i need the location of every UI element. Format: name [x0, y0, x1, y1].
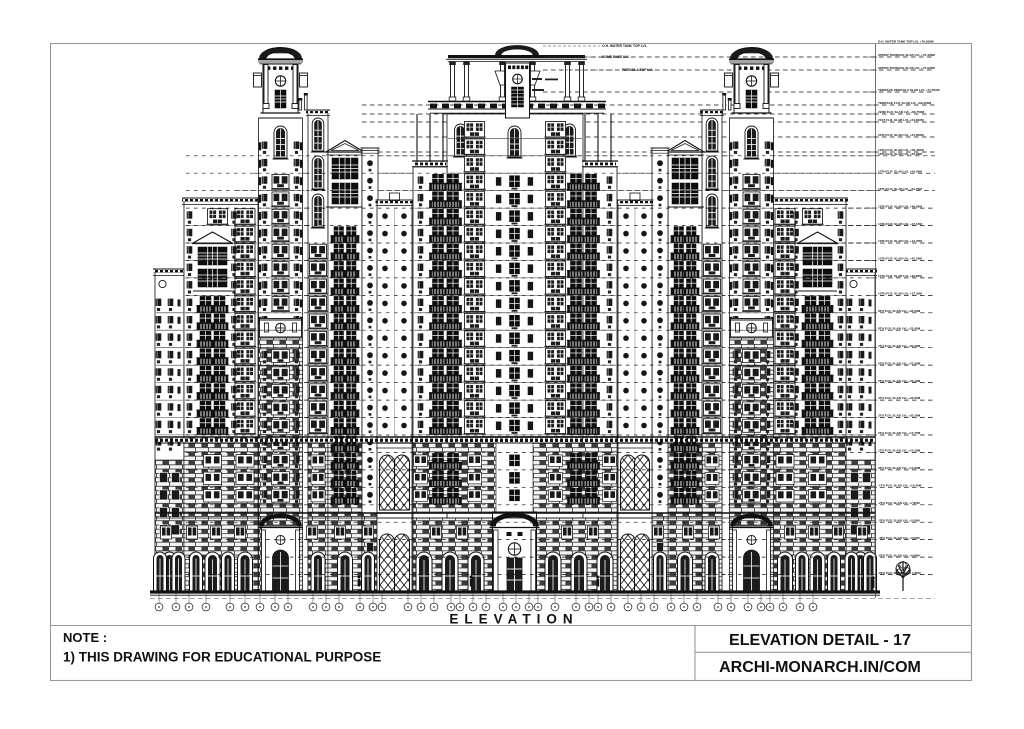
svg-text:2TH FLR. SLAB LVL +17.75M: 2TH FLR. SLAB LVL +17.75M	[878, 431, 921, 435]
svg-text:8TH FLR. SLAB LVL +32.45M: 8TH FLR. SLAB LVL +32.45M	[878, 326, 921, 330]
svg-text:UPPER TERRACE SLAB LVL +76.400: UPPER TERRACE SLAB LVL +76.400M	[878, 53, 935, 57]
svg-text:4TH FLR. SLAB LVL +22.65M: 4TH FLR. SLAB LVL +22.65M	[878, 396, 921, 400]
svg-text:-4TH FLR. SLAB LVL +3.05M: -4TH FLR. SLAB LVL +3.05M	[878, 536, 920, 540]
svg-text:ELEVATION DETAIL - 17: ELEVATION DETAIL - 17	[729, 632, 911, 649]
svg-text:PERGOLA TOP LVL: PERGOLA TOP LVL	[622, 68, 654, 72]
svg-text:6TH FLR. SLAB LVL +27.55M: 6TH FLR. SLAB LVL +27.55M	[878, 361, 921, 365]
svg-text:14TH FLR. SLAB LVL +47.15M: 14TH FLR. SLAB LVL +47.15M	[878, 222, 922, 226]
svg-text:TERRACE PERGOLA SLAB LVL +71.5: TERRACE PERGOLA SLAB LVL +71.500M	[878, 88, 940, 92]
svg-text:ARCHI-MONARCH.IN/COM: ARCHI-MONARCH.IN/COM	[719, 659, 921, 676]
svg-text:O.H. WATER TANK TOP LVL: O.H. WATER TANK TOP LVL	[602, 44, 647, 48]
svg-text:7TH FLR. SLAB LVL +30.00M: 7TH FLR. SLAB LVL +30.00M	[878, 344, 921, 348]
svg-text:11TH FLR. SLAB LVL +39.80M: 11TH FLR. SLAB LVL +39.80M	[878, 274, 922, 278]
svg-text:9TH FLR. SLAB LVL +34.90M: 9TH FLR. SLAB LVL +34.90M	[878, 309, 921, 313]
svg-text:21ST FLR. SLAB LVL +64.300M: 21ST FLR. SLAB LVL +64.300M	[878, 118, 924, 122]
svg-text:12TH FLR. SLAB LVL +42.25M: 12TH FLR. SLAB LVL +42.25M	[878, 257, 922, 261]
svg-text:17TH FLR. SLAB LVL +54.50M: 17TH FLR. SLAB LVL +54.50M	[878, 169, 922, 173]
svg-text:10TH FLR. SLAB LVL +37.35M: 10TH FLR. SLAB LVL +37.35M	[878, 292, 922, 296]
svg-text:-5TH FLR. SLAB LVL +0.60M: -5TH FLR. SLAB LVL +0.60M	[878, 553, 920, 557]
svg-text:20TH FLR. SLAB LVL +61.850M: 20TH FLR. SLAB LVL +61.850M	[878, 133, 924, 137]
svg-text:TERRACE FLR. SLAB LVL +69.200M: TERRACE FLR. SLAB LVL +69.200M	[878, 101, 932, 105]
svg-text:18TH FLR. SLAB LVL +56.95M: 18TH FLR. SLAB LVL +56.95M	[878, 152, 922, 156]
svg-text:NOTE :: NOTE :	[63, 630, 107, 645]
svg-text:3TH FLR. SLAB LVL +20.20M: 3TH FLR. SLAB LVL +20.20M	[878, 414, 921, 418]
svg-text:1TH FLR. SLAB LVL +15.30M: 1TH FLR. SLAB LVL +15.30M	[878, 449, 921, 453]
svg-text:0TH FLR. SLAB LVL +12.85M: 0TH FLR. SLAB LVL +12.85M	[878, 466, 921, 470]
svg-text:-6TH FLR. SLAB LVL +-1.85M: -6TH FLR. SLAB LVL +-1.85M	[878, 571, 921, 575]
svg-text:DOME BASE LVL: DOME BASE LVL	[602, 55, 630, 59]
svg-text:16TH FLR. SLAB LVL +52.05M: 16TH FLR. SLAB LVL +52.05M	[878, 187, 922, 191]
svg-text:5TH FLR. SLAB LVL +25.10M: 5TH FLR. SLAB LVL +25.10M	[878, 379, 921, 383]
svg-text:-3TH FLR. SLAB LVL +5.50M: -3TH FLR. SLAB LVL +5.50M	[878, 518, 920, 522]
svg-text:1) THIS DRAWING FOR EDUCATIONA: 1) THIS DRAWING FOR EDUCATIONAL PURPOSE	[63, 650, 381, 665]
svg-text:UPPER TERRACE SLAB LVL +74.900: UPPER TERRACE SLAB LVL +74.900M	[878, 66, 935, 70]
svg-text:-2TH FLR. SLAB LVL +7.95M: -2TH FLR. SLAB LVL +7.95M	[878, 501, 920, 505]
svg-text:13TH FLR. SLAB LVL +44.70M: 13TH FLR. SLAB LVL +44.70M	[878, 239, 922, 243]
svg-text:ELEVATION: ELEVATION	[449, 612, 578, 627]
svg-text:-1TH FLR. SLAB LVL +10.40M: -1TH FLR. SLAB LVL +10.40M	[878, 484, 922, 488]
svg-text:15TH FLR. SLAB LVL +49.60M: 15TH FLR. SLAB LVL +49.60M	[878, 204, 922, 208]
svg-text:22ND FLR. SLAB LVL +66.750M: 22ND FLR. SLAB LVL +66.750M	[878, 110, 924, 114]
